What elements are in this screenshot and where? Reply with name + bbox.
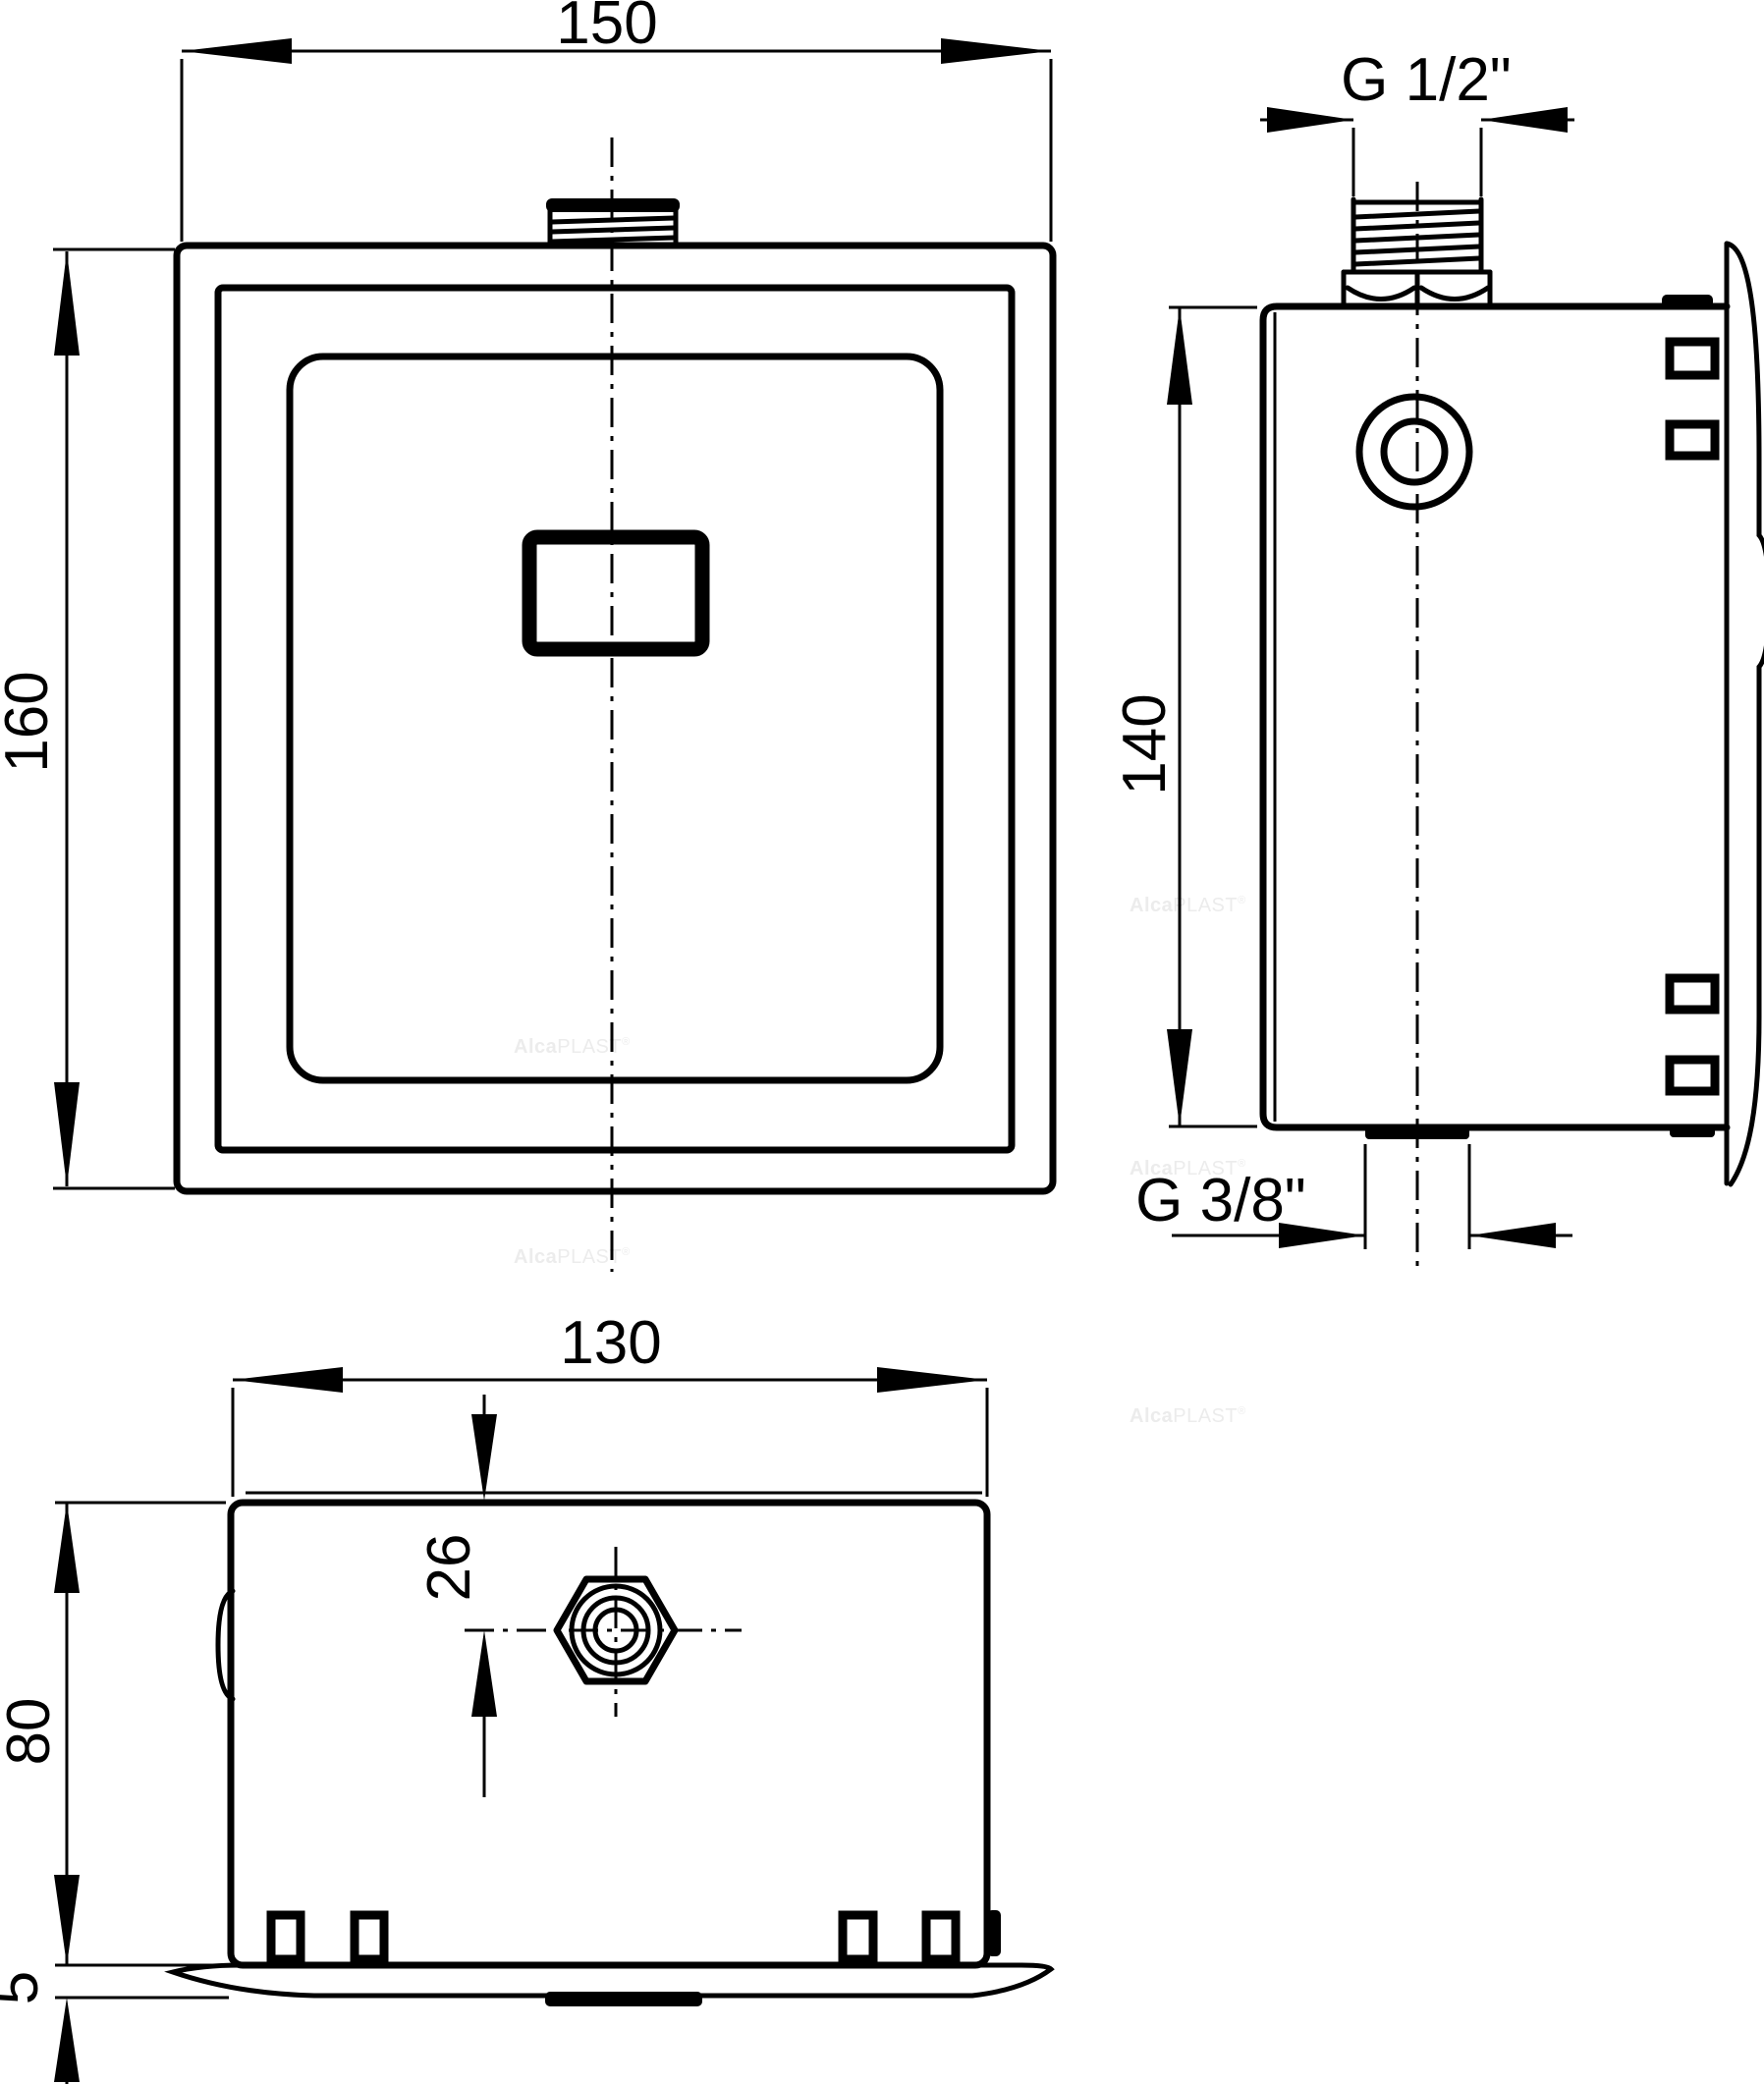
front-sensor-window [529, 537, 702, 649]
clip [1670, 342, 1715, 375]
side-clips [1670, 342, 1715, 1091]
arrowhead [54, 1082, 80, 1186]
arrowhead [471, 1414, 497, 1501]
clip [271, 1915, 301, 1959]
dim-front-height: 160 [0, 249, 175, 1188]
side-sensor-outer-circle [1359, 397, 1469, 507]
front-view [177, 137, 1053, 1272]
clip [843, 1915, 873, 1959]
thread-line [1355, 211, 1479, 217]
front-inner-panel [290, 356, 940, 1080]
dim-plan-flange: 5 [0, 1971, 229, 2084]
dim-label-80: 80 [0, 1698, 63, 1766]
arrowhead [1279, 1223, 1365, 1248]
clip [1670, 1060, 1715, 1091]
side-bottom-tab [1670, 1126, 1715, 1137]
clip [1670, 978, 1715, 1010]
arrowhead [941, 38, 1051, 64]
nut-facet-curve [1348, 288, 1414, 300]
nut-facet-curve [1421, 288, 1488, 300]
dim-plan-width: 130 [233, 1309, 987, 1497]
dim-label-5: 5 [0, 1971, 51, 2004]
arrowhead [182, 38, 292, 64]
flange-outer-curve [1727, 244, 1764, 1184]
dim-plan-offset: 26 [415, 1395, 497, 1797]
arrowhead [54, 1875, 80, 1965]
dim-label-140: 140 [1111, 693, 1179, 795]
arrowhead [1167, 307, 1192, 405]
clip [355, 1915, 384, 1959]
side-body [1263, 306, 1727, 1127]
clip [1670, 424, 1715, 456]
dim-side-height: 140 [1111, 307, 1257, 1126]
watermark: AlcaPLAST® [1130, 895, 1246, 916]
plan-clips [271, 1915, 956, 1959]
side-view [1263, 182, 1764, 1275]
arrowhead [471, 1630, 497, 1717]
front-mid-frame [218, 288, 1012, 1150]
plan-hex-fitting [465, 1547, 742, 1717]
arrowhead [54, 1503, 80, 1593]
arrowhead [233, 1367, 343, 1393]
flange-center-tab [545, 1992, 702, 2006]
dim-label-g12: G 1/2" [1341, 46, 1512, 114]
arrowhead [1469, 1223, 1556, 1248]
dim-label-130: 130 [560, 1309, 661, 1377]
clip [926, 1915, 956, 1959]
dim-label-150: 150 [556, 0, 657, 57]
technical-drawing-svg: AlcaPLAST® AlcaPLAST® AlcaPLAST® AlcaPLA… [0, 0, 1764, 2084]
arrowhead [877, 1367, 987, 1393]
side-flange [1727, 244, 1764, 1184]
flange-profile [173, 1965, 1051, 1996]
arrowhead [1167, 1029, 1192, 1126]
drawing-canvas: AlcaPLAST® AlcaPLAST® AlcaPLAST® AlcaPLA… [0, 0, 1764, 2084]
dim-top-thread: G 1/2" [1260, 46, 1574, 196]
dim-label-26: 26 [415, 1534, 483, 1602]
dimensions: 150 160 G 1/2" 140 [0, 0, 1574, 2084]
side-top-tab [1662, 295, 1713, 307]
plan-view [173, 1493, 1051, 2006]
watermark: AlcaPLAST® [1130, 1405, 1246, 1427]
plan-flange [173, 1965, 1051, 2006]
connector-thread-line [552, 238, 674, 242]
dim-label-160: 160 [0, 671, 61, 772]
side-sensor-inner-circle [1384, 421, 1445, 482]
arrowhead [54, 251, 80, 356]
plan-box [231, 1503, 987, 1965]
plan-right-tab [987, 1910, 1001, 1956]
